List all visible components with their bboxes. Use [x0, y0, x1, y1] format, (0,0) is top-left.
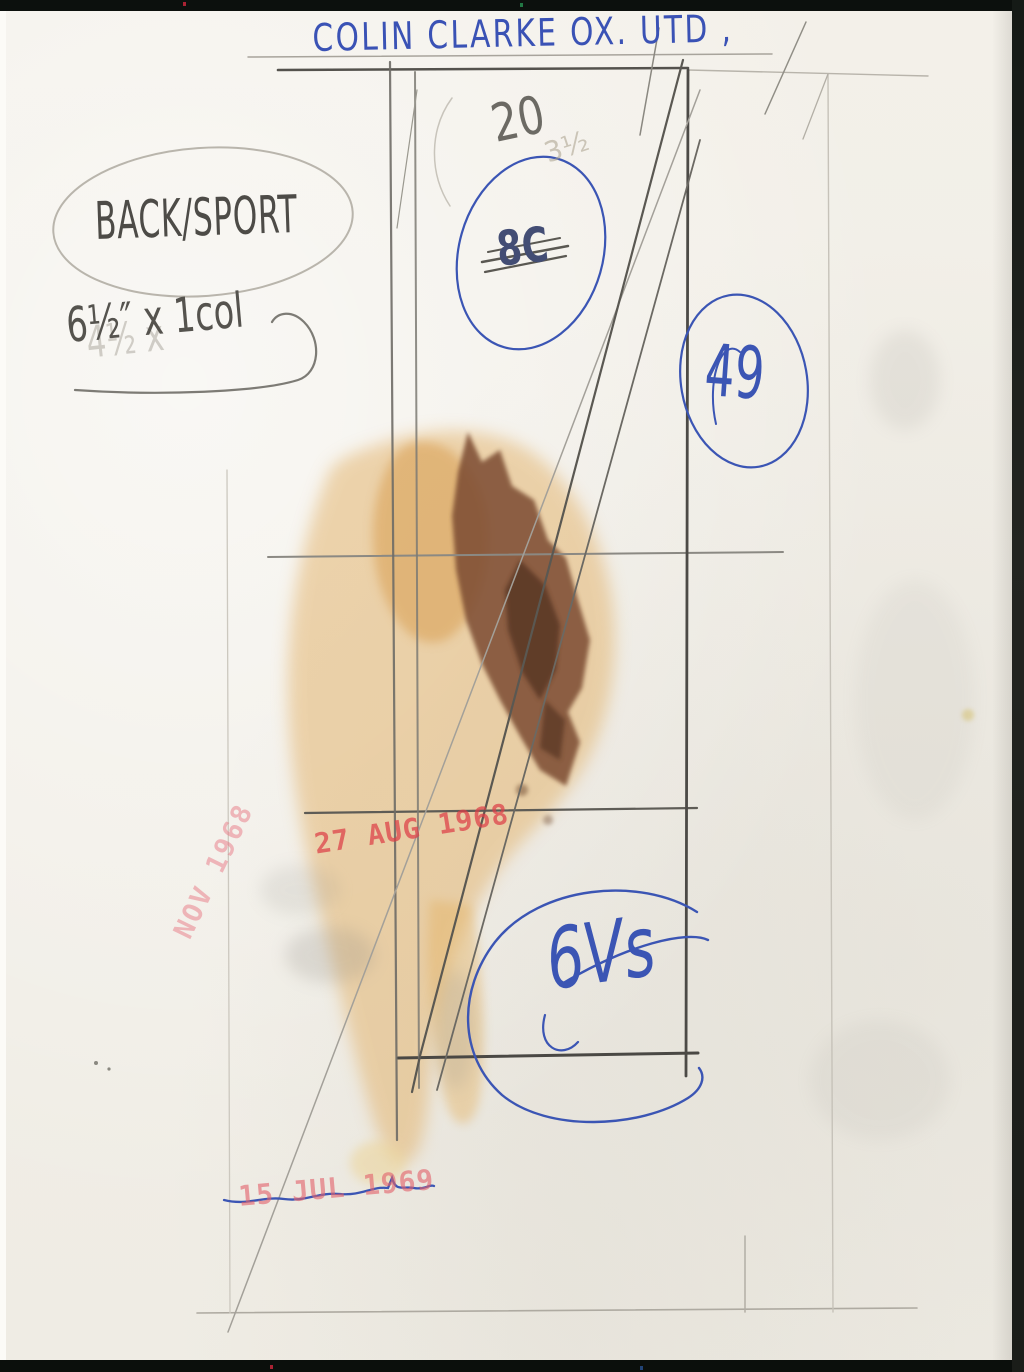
smudge	[285, 927, 375, 983]
rule-top-dark	[278, 68, 688, 70]
pencil-dot	[107, 1067, 110, 1070]
photo-edge-top	[0, 0, 1024, 11]
scan-speck	[520, 3, 523, 7]
stray-tick-col	[803, 74, 828, 139]
photo-edge-bottom	[0, 1360, 1024, 1372]
photo-edge-left	[0, 11, 6, 1360]
circled-mark: 49	[702, 328, 767, 416]
photo-back-scan: COLIN CLARKE OX. UTD , BACK/SPORT 4½ x 6…	[0, 0, 1024, 1372]
scan-speck	[270, 1365, 273, 1369]
smudge	[810, 1020, 950, 1140]
rule-vert-left-faint	[227, 470, 230, 1313]
rule-vert-right	[686, 70, 688, 1076]
photo-edge-right	[1012, 0, 1024, 1372]
ink-curl-6vs	[543, 1015, 578, 1050]
rule-top-ext	[688, 70, 928, 76]
crossed-out-mark: 8C	[494, 217, 551, 278]
stray-tick-vleft	[397, 90, 417, 228]
rule-vert-col-faint	[828, 74, 833, 1312]
smudge	[855, 580, 975, 820]
stain-speck	[543, 815, 553, 825]
stray-tick-topright	[765, 22, 806, 114]
smudge	[260, 865, 340, 915]
pencil-dot	[94, 1061, 98, 1065]
initials-scribble: 6Vs	[540, 897, 661, 1009]
scan-speck	[183, 2, 186, 6]
section-note: BACK/SPORT	[94, 185, 299, 252]
scan-speck	[640, 1366, 643, 1370]
pencil-arc-20	[434, 98, 452, 206]
photo-edge-shadow	[992, 11, 1012, 1360]
rule-bottom-faint	[197, 1308, 917, 1313]
smudge	[870, 330, 940, 430]
